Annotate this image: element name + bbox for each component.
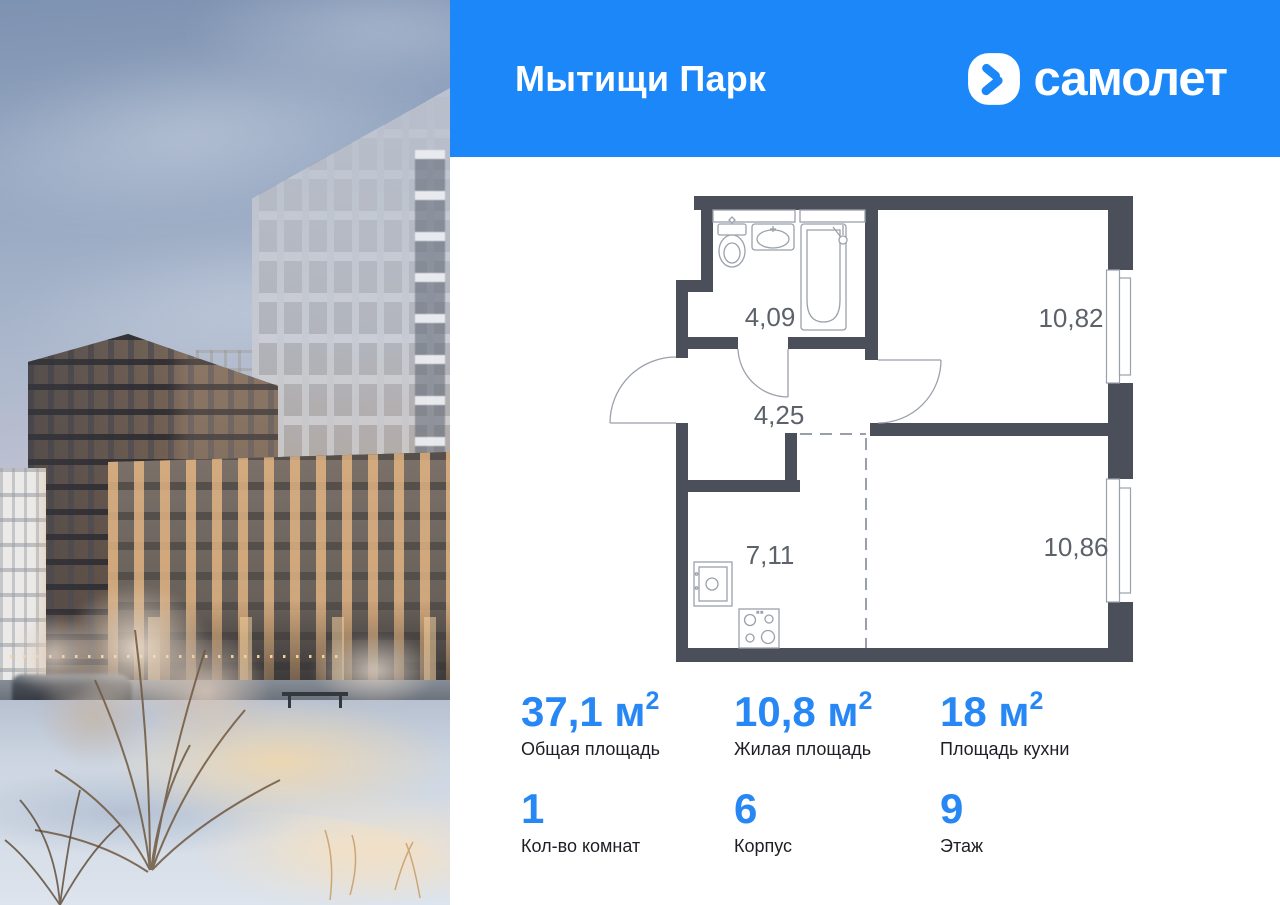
stat-living-area: 10,8 м2 Жилая площадь [734,682,939,760]
stat-total-area: 37,1 м2 Общая площадь [521,682,726,760]
stat-label: Этаж [940,836,1145,857]
stat-value: 37,1 м2 [521,682,726,733]
bathtub-icon [801,224,847,330]
stat-value: 1 [521,788,726,830]
room-area-label: 4,25 [754,400,805,430]
stat-kitchen-area: 18 м2 Площадь кухни [940,682,1145,760]
photo-foreground-twigs [0,780,450,905]
kitchen-sink-icon [694,562,732,606]
room-area-label: 7,11 [746,540,795,570]
stat-building-number: 6 Корпус [734,788,939,857]
kitchen-fixtures [694,562,779,648]
project-photo [0,0,450,905]
project-title: Мытищи Парк [515,58,766,100]
sink-icon [752,224,794,250]
room-area-label: 4,09 [745,302,796,332]
stat-value: 9 [940,788,1145,830]
duct-shelf [800,210,865,222]
duct-shelf [713,210,795,222]
stat-value: 6 [734,788,939,830]
toilet-icon [718,217,746,267]
stat-floor-number: 9 Этаж [940,788,1145,857]
floor-plan-walls [676,196,1133,662]
room-area-label: 10,86 [1043,532,1108,562]
samolet-chevron-icon [967,52,1021,106]
stat-label: Общая площадь [521,739,726,760]
stat-label: Площадь кухни [940,739,1145,760]
stat-value: 18 м2 [940,682,1145,733]
room-area-label: 10,82 [1038,303,1103,333]
header-bar: Мытищи Парк самолет [450,0,1280,157]
stat-rooms-count: 1 Кол-во комнат [521,788,726,857]
stat-label: Корпус [734,836,939,857]
stat-value: 10,8 м2 [734,682,939,733]
stove-icon [739,609,779,648]
brand-logo: самолет [967,51,1228,107]
dashed-zone-line [800,434,866,648]
brand-name: самолет [1034,51,1228,107]
stat-label: Жилая площадь [734,739,939,760]
floor-plan: 4,09 4,25 10,82 7,11 10,86 [600,188,1160,678]
stat-label: Кол-во комнат [521,836,726,857]
